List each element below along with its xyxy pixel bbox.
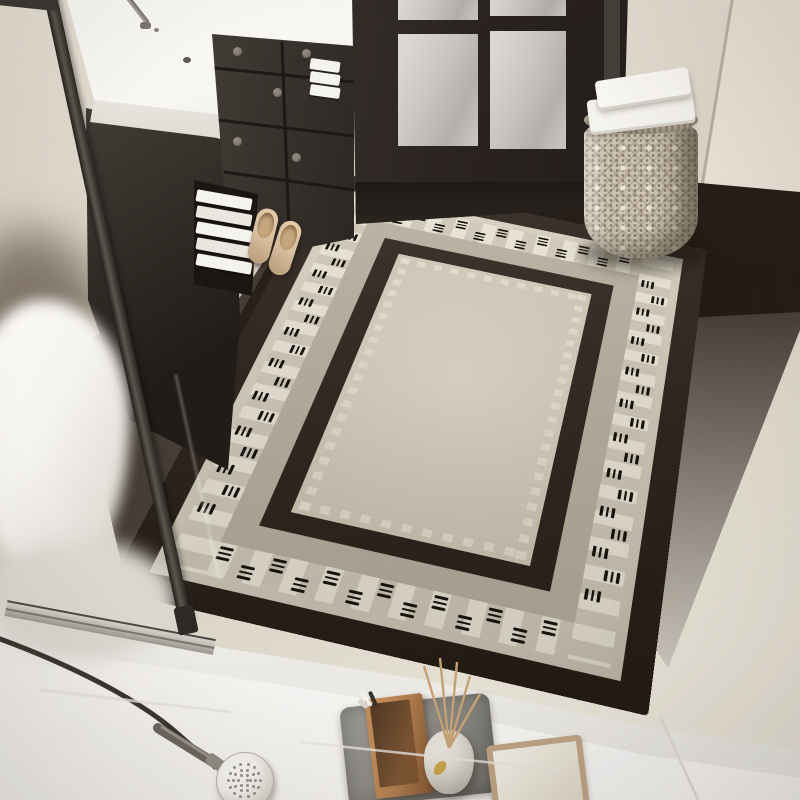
- vignette: [0, 0, 800, 800]
- bathroom-scene: [0, 0, 800, 800]
